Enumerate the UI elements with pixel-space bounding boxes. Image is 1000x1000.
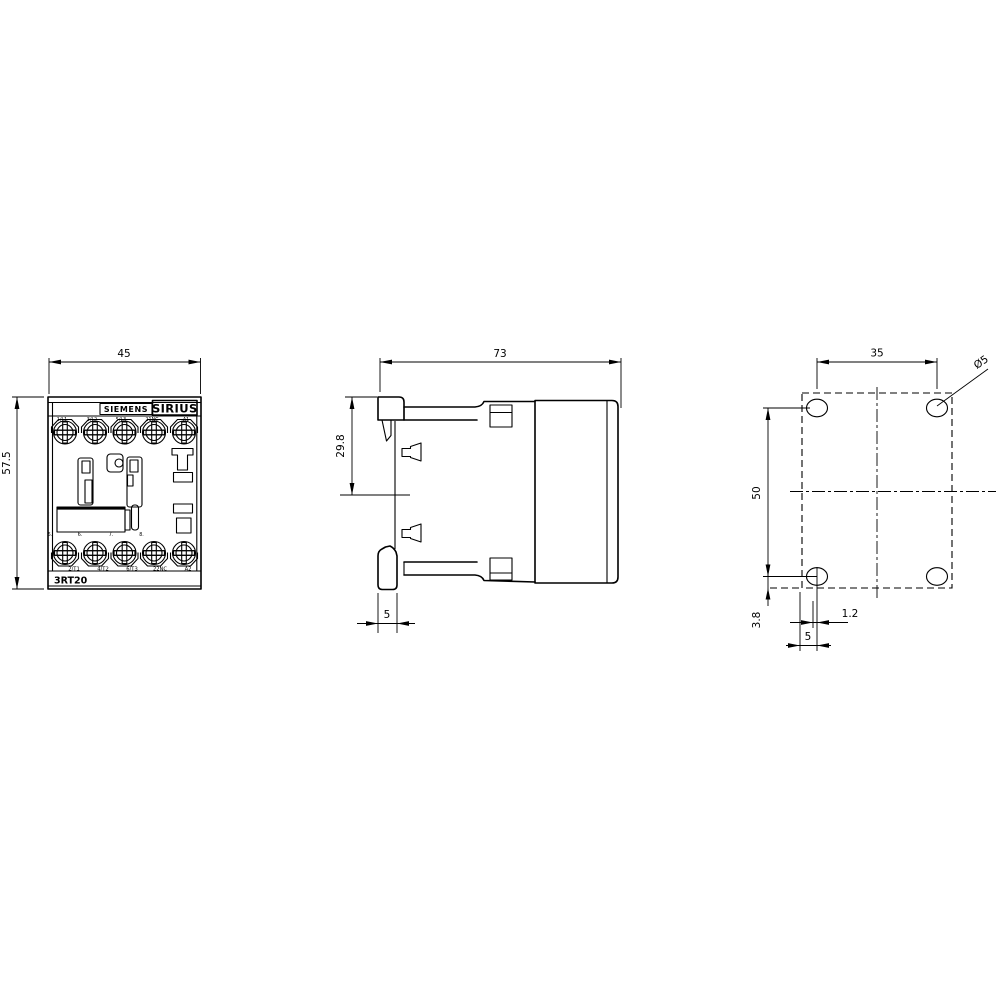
din-plate-bottom [378,546,397,590]
front-width-dimension: 45 [49,348,201,394]
mount-v-dimension: 50 [751,408,817,577]
front-view: 45 57.5 SIEMENS SIRIUS [1,348,201,589]
side-depth-dimension: 73 [380,348,621,408]
side-rail-dim-label: 5 [384,609,391,621]
screw-terminal [84,542,107,565]
terminal-label-top-3: 5/L3 [116,417,126,423]
screw-terminal [113,421,136,444]
mounting-view: 35 Ø5 50 3.8 [751,348,996,652]
mount-v-dim-label: 50 [751,486,763,499]
mount-edge-dim-label: 3.8 [751,612,763,629]
sirius-logo: SIRIUS [152,402,198,416]
siemens-logo: SIEMENS [104,405,148,414]
terminal-label-top-5: A1 [183,417,189,423]
screw-terminal [54,421,77,444]
side-view: 73 29.8 [335,348,621,633]
screw-terminal [113,542,136,565]
latch-top [490,405,512,427]
side-depth-dim-label: 73 [493,348,506,360]
tab-lower [402,524,421,542]
mounting-hole [927,568,948,586]
terminal-label-top-2: 3/L2 [87,417,97,423]
model-label: 3RT20 [54,576,88,587]
screw-terminal [173,421,196,444]
screw-terminal [173,542,196,565]
mount-bottom-dimension: 5 [786,631,831,648]
hole-diameter-callout: Ø5 [937,353,991,406]
mounting-hole [927,399,948,417]
pin-number-2: 6. [78,532,83,538]
accessory-slot-t [172,449,193,471]
pin-number-4: 8. [139,532,144,538]
front-height-dim-label: 57.5 [1,451,13,474]
terminal-label-bottom-2: 4/T2 [97,567,109,573]
terminal-label-bottom-3: 6/T3 [126,567,138,573]
screw-terminal [143,421,166,444]
front-width-dim-label: 45 [117,348,130,360]
front-face-details [57,449,193,534]
latch-bottom [490,558,512,580]
side-body-outline [535,401,618,584]
pin-number-3: 7. [109,532,114,538]
side-din-dim-label: 29.8 [335,434,347,457]
front-height-dimension: 57.5 [1,397,44,589]
mount-bottom-dim-label: 5 [805,631,812,643]
side-rail-dimension: 5 [357,593,415,633]
mount-offset-dim-label: 1.2 [842,608,859,620]
screw-terminal [54,542,77,565]
terminal-label-bottom-5: A2 [185,567,192,573]
terminal-label-top-4: 21NC [145,417,159,423]
tab-upper [402,443,421,461]
din-plate-top [378,397,404,420]
terminal-label-top-1: 1/L1 [57,417,67,423]
dimension-drawing-canvas: 45 57.5 SIEMENS SIRIUS [0,0,1000,1000]
nameplate-area [57,507,125,532]
terminal-label-bottom-4: 22NC [153,567,167,573]
mount-h-dim-label: 35 [870,348,883,360]
screw-terminal [84,421,107,444]
side-din-dimension: 29.8 [335,397,410,495]
contactor-dimension-drawing: 45 57.5 SIEMENS SIRIUS [0,0,1000,1000]
front-body-outline [48,397,201,589]
pin-number-1: 5. [48,532,53,538]
mount-h-dimension: 35 [817,348,937,390]
terminal-label-bottom-1: 2/T1 [68,567,80,573]
screw-terminal [143,542,166,565]
top-terminal-row: 1/L1 3/L2 5/L3 21NC A1 [52,417,198,444]
bottom-terminal-row: 5. 6. 7. 8. 2/T1 4/T2 6/T3 22NC A2 [48,532,198,573]
